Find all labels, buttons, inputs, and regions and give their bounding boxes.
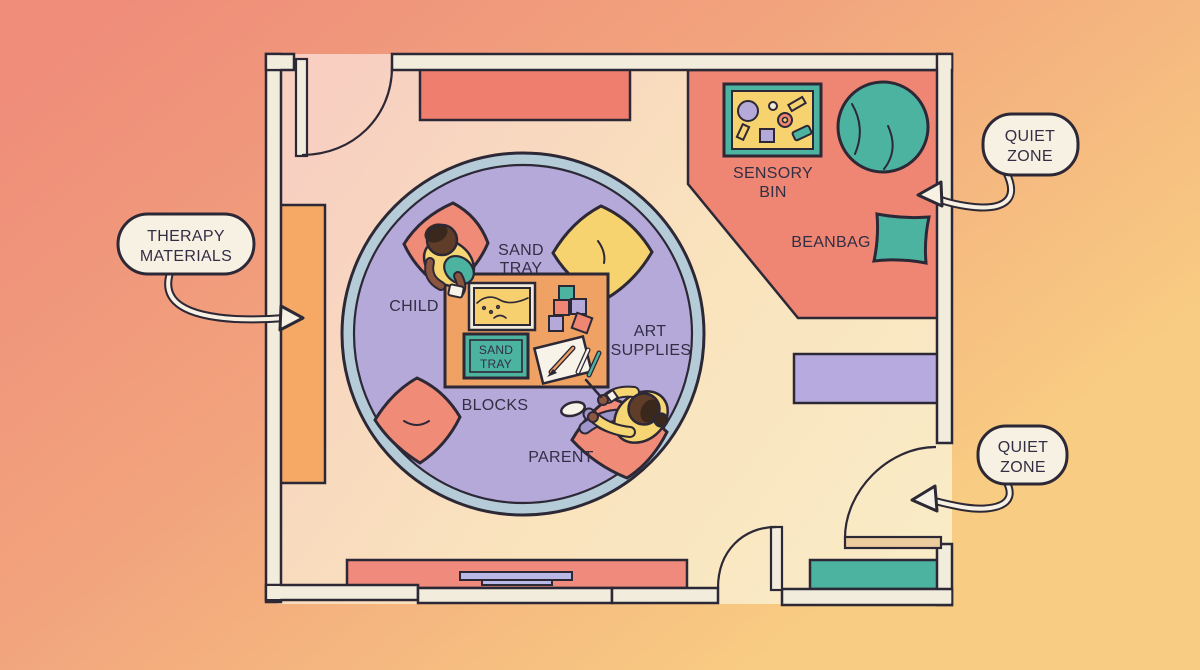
console-top-tier [460, 572, 572, 580]
play-table [445, 274, 608, 387]
floor-plan-canvas: SENSORY BIN BEANBAG SAND TRAY CHILD ART … [0, 0, 1200, 670]
parent-hair-bun [655, 414, 668, 427]
quiet-corner-pillow [874, 214, 929, 263]
label-sand-tray-line2: TRAY [500, 260, 543, 277]
child-toy [448, 284, 464, 298]
label-plate-line1: SAND [479, 343, 513, 357]
wall-bottom-mid-2 [612, 588, 718, 603]
block-purple [571, 299, 586, 314]
wall-bottom-left [266, 585, 418, 600]
wall-top [392, 54, 952, 70]
label-sand-tray-line1: SAND [498, 242, 544, 259]
label-plate-line2: TRAY [480, 357, 512, 371]
quiet-bottom-line2: ZONE [1000, 459, 1046, 476]
label-beanbag: BEANBAG [791, 234, 870, 251]
label-blocks: BLOCKS [462, 397, 529, 414]
wall-bottom-right [782, 589, 952, 605]
beanbag [838, 82, 928, 172]
bin-toy-ring-hole [783, 118, 788, 123]
quiet-top-line2: ZONE [1007, 148, 1053, 165]
door-leaf-quiet-zone [845, 537, 941, 548]
sand-tray-sand [474, 288, 530, 325]
sand-tray-framed [469, 283, 535, 330]
bin-toy-circle [738, 101, 758, 121]
therapy-bubble-line1: THERAPY [147, 228, 225, 245]
label-art-supplies-line1: ART [634, 323, 667, 340]
right-wall-shelf [794, 354, 938, 403]
door-leaf-bottom [771, 527, 782, 590]
wall-right-upper [937, 54, 952, 443]
quiet-top-line1: QUIET [1005, 128, 1055, 145]
bin-toy-square [760, 129, 774, 142]
therapy-materials-shelf [280, 205, 325, 483]
wall-corner-patch [267, 55, 280, 69]
beanbag-chair [838, 82, 928, 172]
door-leaf-top-left [296, 59, 307, 156]
wall-bottom-mid [418, 588, 612, 603]
top-wall-shelf [420, 69, 630, 120]
label-sensory-bin-line2: BIN [759, 184, 787, 201]
sensory-bin [724, 84, 821, 156]
label-sensory-bin-line1: SENSORY [733, 165, 813, 182]
label-child: CHILD [389, 298, 439, 315]
parent-hand-2 [588, 412, 598, 422]
console-bottom-tier [482, 580, 552, 585]
wall-corner-patch [267, 586, 280, 599]
wall-corner-patch [938, 55, 951, 69]
label-parent: PARENT [528, 449, 594, 466]
floor-plan-illustration: SENSORY BIN BEANBAG SAND TRAY CHILD ART … [0, 0, 1200, 670]
block-salmon [554, 300, 569, 315]
wall-corner-patch [938, 591, 951, 604]
block-purple-2 [549, 316, 563, 331]
therapy-bubble-line2: MATERIALS [140, 248, 232, 265]
label-art-supplies-line2: SUPPLIES [611, 342, 692, 359]
quiet-bottom-line1: QUIET [998, 439, 1048, 456]
bin-toy-dot [769, 102, 777, 110]
quiet-zone-bench [810, 560, 938, 589]
